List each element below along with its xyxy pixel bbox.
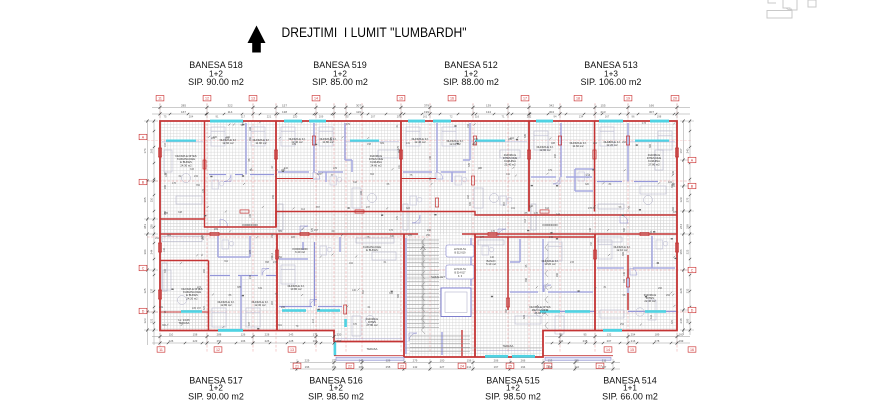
svg-text:374: 374	[203, 305, 206, 310]
svg-text:358: 358	[265, 261, 270, 264]
svg-text:E BUKES: E BUKES	[366, 248, 378, 252]
svg-text:167: 167	[181, 110, 186, 114]
svg-text:229: 229	[333, 167, 338, 170]
svg-text:176: 176	[491, 230, 496, 233]
svg-text:211: 211	[155, 237, 159, 240]
svg-text:13: 13	[290, 348, 294, 352]
svg-text:183: 183	[360, 190, 363, 195]
svg-text:13.80 m2: 13.80 m2	[290, 287, 302, 291]
svg-text:19: 19	[626, 97, 630, 101]
svg-text:394: 394	[143, 249, 147, 254]
svg-text:110: 110	[150, 197, 154, 202]
svg-text:293: 293	[622, 141, 627, 144]
svg-text:172: 172	[332, 358, 337, 362]
svg-text:320: 320	[585, 183, 590, 186]
svg-text:357: 357	[316, 206, 321, 209]
svg-text:TERASA: TERASA	[179, 321, 190, 325]
svg-text:240: 240	[427, 229, 432, 232]
svg-text:332: 332	[686, 288, 690, 293]
svg-text:24.30 m2: 24.30 m2	[180, 163, 192, 167]
svg-text:15: 15	[399, 97, 403, 101]
svg-text:269: 269	[686, 224, 690, 229]
svg-text:11: 11	[158, 97, 162, 101]
svg-text:189: 189	[655, 332, 660, 336]
svg-text:348: 348	[178, 211, 183, 214]
svg-text:171: 171	[396, 215, 399, 220]
svg-text:164: 164	[467, 194, 470, 199]
svg-text:116: 116	[475, 115, 480, 119]
svg-text:224: 224	[559, 339, 564, 343]
svg-text:142: 142	[413, 365, 418, 369]
svg-text:HYRJA 51: HYRJA 51	[454, 247, 467, 251]
svg-text:K. II: K. II	[458, 275, 463, 278]
svg-text:155: 155	[600, 103, 605, 107]
svg-text:294: 294	[203, 268, 206, 273]
svg-text:278: 278	[655, 339, 660, 343]
svg-text:14: 14	[314, 97, 318, 101]
svg-text:198: 198	[657, 115, 662, 119]
svg-text:94: 94	[554, 115, 557, 119]
svg-text:B 512-519: B 512-519	[454, 252, 466, 255]
svg-text:125: 125	[143, 288, 147, 293]
svg-text:SIP. 90.00 m2: SIP. 90.00 m2	[188, 392, 244, 402]
svg-text:TERASA: TERASA	[367, 347, 378, 351]
svg-text:390: 390	[397, 293, 400, 298]
svg-text:316: 316	[353, 181, 358, 184]
svg-text:370: 370	[353, 323, 358, 326]
svg-text:72: 72	[450, 115, 453, 119]
svg-text:24: 24	[460, 364, 464, 368]
svg-text:SHKALLET: SHKALLET	[431, 275, 445, 279]
svg-text:12.10 m2: 12.10 m2	[449, 142, 461, 146]
svg-text:12.80 m2: 12.80 m2	[220, 303, 232, 307]
svg-text:SIP. 106.00 m2: SIP. 106.00 m2	[581, 77, 642, 87]
svg-text:153: 153	[467, 123, 470, 128]
svg-text:71: 71	[502, 115, 505, 119]
svg-text:139: 139	[486, 103, 491, 107]
svg-text:12.40 m2: 12.40 m2	[291, 140, 303, 144]
svg-text:284: 284	[472, 143, 477, 146]
svg-text:110: 110	[575, 365, 580, 369]
svg-text:352: 352	[249, 136, 252, 141]
svg-text:186: 186	[291, 236, 296, 239]
svg-text:175: 175	[313, 332, 318, 336]
svg-text:255: 255	[272, 194, 275, 199]
svg-text:C: C	[142, 267, 145, 271]
svg-text:13.20 m2: 13.20 m2	[544, 262, 556, 266]
svg-text:22.40 m2: 22.40 m2	[644, 299, 656, 303]
svg-text:323: 323	[406, 207, 411, 210]
svg-text:25: 25	[508, 364, 512, 368]
svg-text:319: 319	[258, 287, 263, 290]
svg-text:123: 123	[143, 318, 147, 323]
svg-text:363: 363	[672, 206, 675, 211]
svg-text:143: 143	[359, 358, 364, 362]
svg-text:138: 138	[282, 110, 287, 114]
svg-text:131: 131	[406, 142, 411, 145]
svg-text:100: 100	[440, 358, 445, 362]
svg-text:209: 209	[319, 115, 324, 119]
svg-text:269: 269	[164, 184, 167, 189]
svg-text:344: 344	[362, 289, 365, 294]
svg-text:13: 13	[251, 97, 255, 101]
svg-text:237: 237	[366, 206, 371, 209]
svg-text:204: 204	[554, 153, 557, 158]
svg-text:154: 154	[510, 137, 515, 140]
svg-text:75: 75	[346, 115, 349, 119]
svg-text:6.40 m2: 6.40 m2	[295, 250, 305, 254]
svg-text:SIP. 85.00 m2: SIP. 85.00 m2	[312, 77, 368, 87]
svg-text:95: 95	[583, 332, 587, 336]
svg-text:379: 379	[346, 123, 351, 126]
svg-text:118: 118	[524, 218, 527, 222]
svg-text:20: 20	[673, 97, 677, 101]
svg-text:213: 213	[586, 174, 591, 177]
svg-text:358: 358	[525, 277, 528, 282]
svg-text:206: 206	[494, 358, 499, 362]
svg-text:17: 17	[523, 97, 527, 101]
svg-text:15: 15	[630, 348, 634, 352]
svg-text:161: 161	[423, 115, 428, 119]
svg-text:194: 194	[521, 365, 526, 369]
svg-text:11.80 m2: 11.80 m2	[322, 140, 334, 144]
svg-text:156: 156	[332, 365, 337, 369]
svg-text:176: 176	[172, 182, 177, 185]
svg-text:340: 340	[686, 148, 690, 153]
svg-text:314: 314	[545, 207, 550, 210]
svg-text:235: 235	[548, 365, 553, 369]
svg-text:281: 281	[211, 137, 216, 140]
svg-text:27.80 m2: 27.80 m2	[648, 162, 660, 166]
svg-text:91: 91	[216, 115, 219, 119]
svg-text:337: 337	[248, 321, 251, 326]
svg-text:381: 381	[167, 234, 172, 237]
svg-text:265: 265	[150, 148, 154, 153]
svg-text:246: 246	[249, 274, 252, 279]
svg-text:287: 287	[271, 300, 274, 305]
svg-text:304: 304	[549, 110, 554, 114]
svg-text:SIP. 88.00 m2: SIP. 88.00 m2	[443, 77, 499, 87]
svg-text:197: 197	[249, 249, 252, 254]
svg-text:242: 242	[549, 236, 554, 239]
svg-text:144: 144	[164, 142, 167, 147]
svg-text:209: 209	[397, 115, 402, 119]
svg-text:285: 285	[181, 103, 186, 107]
svg-text:262: 262	[337, 339, 342, 343]
svg-text:219: 219	[159, 306, 164, 309]
svg-text:98: 98	[575, 358, 579, 362]
svg-text:134: 134	[486, 110, 491, 114]
svg-text:129: 129	[679, 197, 683, 202]
svg-text:24.60 m2: 24.60 m2	[370, 163, 382, 167]
svg-text:214: 214	[467, 365, 472, 369]
svg-text:385: 385	[237, 286, 242, 289]
svg-text:112: 112	[301, 208, 305, 211]
svg-text:156: 156	[467, 358, 472, 362]
svg-text:375: 375	[686, 197, 690, 202]
svg-text:161: 161	[511, 207, 516, 210]
svg-text:12.60 m2: 12.60 m2	[222, 141, 234, 145]
svg-text:211: 211	[602, 358, 607, 362]
svg-text:126: 126	[241, 332, 246, 336]
svg-text:24.20 m2: 24.20 m2	[186, 296, 198, 300]
svg-text:354: 354	[398, 148, 401, 153]
svg-text:11.90 m2: 11.90 m2	[255, 141, 267, 145]
svg-text:137: 137	[150, 288, 154, 293]
svg-text:D: D	[691, 309, 694, 313]
svg-text:340: 340	[390, 235, 395, 238]
svg-text:100: 100	[589, 227, 592, 232]
svg-text:266: 266	[521, 358, 526, 362]
svg-text:21: 21	[295, 364, 299, 368]
svg-text:301: 301	[278, 324, 283, 327]
svg-text:174: 174	[143, 148, 147, 153]
svg-text:227: 227	[440, 365, 445, 369]
svg-text:12: 12	[205, 97, 209, 101]
svg-text:262: 262	[666, 294, 671, 297]
svg-text:23: 23	[400, 364, 404, 368]
svg-text:104: 104	[313, 339, 318, 343]
svg-text:5.10 m2: 5.10 m2	[486, 262, 496, 266]
svg-text:344: 344	[150, 249, 154, 254]
svg-text:12.10 m2: 12.10 m2	[616, 248, 628, 252]
svg-text:27.30 m2: 27.30 m2	[366, 323, 378, 327]
svg-text:187: 187	[602, 365, 607, 369]
svg-text:252: 252	[620, 323, 625, 326]
svg-text:196: 196	[305, 365, 310, 369]
svg-text:150: 150	[271, 255, 274, 260]
svg-text:26.90 m2: 26.90 m2	[534, 311, 546, 315]
svg-text:296: 296	[658, 287, 663, 290]
svg-text:114: 114	[228, 110, 233, 114]
svg-text:234: 234	[194, 175, 199, 178]
svg-text:283: 283	[359, 365, 364, 369]
svg-text:TERASA: TERASA	[503, 344, 514, 348]
svg-text:134: 134	[579, 115, 584, 119]
svg-text:339: 339	[524, 133, 527, 138]
svg-text:96: 96	[632, 115, 635, 119]
svg-text:322: 322	[227, 103, 232, 107]
svg-text:12.90 m2: 12.90 m2	[539, 148, 551, 152]
svg-text:117: 117	[241, 115, 246, 119]
svg-text:207: 207	[371, 115, 376, 119]
svg-text:366: 366	[671, 183, 674, 188]
svg-text:238: 238	[583, 339, 588, 343]
svg-text:144: 144	[556, 213, 561, 216]
svg-text:11.60 m2: 11.60 m2	[572, 144, 584, 148]
svg-text:167: 167	[494, 365, 499, 369]
svg-text:252: 252	[278, 256, 283, 259]
svg-text:273: 273	[201, 234, 204, 239]
svg-text:159: 159	[429, 155, 432, 160]
svg-text:248: 248	[679, 318, 683, 323]
svg-text:187: 187	[317, 173, 322, 176]
svg-text:96: 96	[559, 332, 563, 336]
svg-text:KORRIDORI: KORRIDORI	[542, 223, 557, 227]
svg-text:226: 226	[169, 339, 174, 343]
svg-text:22: 22	[348, 364, 352, 368]
svg-text:158: 158	[193, 332, 198, 336]
svg-text:209: 209	[214, 228, 219, 231]
svg-text:16: 16	[690, 348, 694, 352]
svg-text:295: 295	[281, 306, 286, 309]
svg-text:221: 221	[267, 115, 272, 119]
svg-text:18: 18	[576, 97, 580, 101]
svg-text:369: 369	[278, 230, 283, 233]
svg-text:323: 323	[686, 249, 690, 254]
svg-text:140: 140	[352, 289, 357, 292]
svg-text:75: 75	[164, 115, 167, 119]
svg-text:160: 160	[679, 332, 684, 336]
svg-text:226: 226	[265, 339, 270, 343]
svg-text:167: 167	[679, 148, 683, 153]
svg-text:254: 254	[631, 332, 636, 336]
svg-text:131: 131	[398, 164, 401, 169]
svg-text:SIP. 98.50 m2: SIP. 98.50 m2	[308, 392, 364, 402]
svg-text:302: 302	[623, 227, 626, 232]
svg-text:243: 243	[289, 332, 294, 336]
svg-text:154: 154	[590, 241, 593, 246]
svg-text:SIP. 98.50 m2: SIP. 98.50 m2	[485, 392, 541, 402]
svg-text:279: 279	[413, 358, 418, 362]
svg-text:153: 153	[548, 358, 553, 362]
svg-text:106: 106	[241, 339, 246, 343]
svg-text:228: 228	[265, 332, 270, 336]
svg-text:14: 14	[606, 348, 610, 352]
svg-text:216: 216	[631, 339, 636, 343]
svg-text:DREJTIMI I LUMIT "LUMBARDH": DREJTIMI I LUMIT "LUMBARDH"	[282, 25, 467, 40]
svg-text:C: C	[691, 269, 694, 273]
svg-text:140: 140	[490, 256, 495, 259]
svg-text:323: 323	[523, 314, 526, 319]
svg-text:215: 215	[273, 261, 278, 264]
svg-text:207: 207	[607, 339, 612, 343]
svg-text:167: 167	[605, 115, 610, 119]
svg-text:223: 223	[193, 339, 198, 343]
svg-text:266: 266	[556, 272, 559, 277]
svg-text:379: 379	[548, 169, 553, 172]
svg-text:SIP. 66.00 m2: SIP. 66.00 m2	[602, 392, 658, 402]
svg-text:157: 157	[282, 103, 287, 107]
svg-text:349: 349	[469, 201, 472, 206]
svg-text:166: 166	[649, 103, 654, 107]
svg-text:264: 264	[679, 224, 683, 229]
svg-text:126: 126	[386, 358, 391, 362]
svg-text:305: 305	[143, 197, 147, 202]
svg-text:220: 220	[293, 115, 298, 119]
svg-text:157: 157	[197, 307, 202, 310]
svg-text:199: 199	[424, 110, 429, 114]
svg-text:213: 213	[600, 110, 605, 114]
svg-text:288: 288	[217, 332, 222, 336]
svg-text:292: 292	[593, 142, 598, 145]
svg-text:217: 217	[312, 318, 315, 323]
svg-text:379: 379	[424, 103, 429, 107]
svg-text:146: 146	[672, 170, 675, 175]
svg-text:311: 311	[224, 260, 228, 263]
svg-text:177: 177	[480, 236, 485, 239]
svg-text:110: 110	[169, 332, 174, 336]
svg-text:364: 364	[370, 173, 375, 176]
svg-text:376: 376	[468, 162, 471, 167]
svg-text:386: 386	[679, 249, 683, 254]
svg-text:D: D	[142, 310, 145, 314]
svg-text:372: 372	[671, 319, 674, 324]
svg-text:132: 132	[607, 332, 612, 336]
svg-text:357: 357	[503, 201, 506, 206]
svg-text:297: 297	[314, 229, 319, 232]
svg-text:346: 346	[623, 278, 626, 283]
svg-text:121: 121	[150, 318, 154, 323]
svg-text:342: 342	[549, 103, 554, 107]
svg-text:307: 307	[649, 110, 654, 114]
svg-text:119: 119	[356, 110, 361, 114]
svg-text:229: 229	[305, 358, 310, 362]
svg-text:379: 379	[311, 227, 314, 232]
svg-text:11: 11	[159, 348, 163, 352]
svg-text:288: 288	[164, 210, 167, 215]
svg-text:366: 366	[162, 324, 167, 327]
svg-text:12.20 m2: 12.20 m2	[606, 143, 618, 147]
svg-text:333: 333	[190, 168, 195, 171]
svg-text:313: 313	[650, 314, 653, 319]
svg-text:254: 254	[217, 339, 222, 343]
svg-text:188: 188	[551, 142, 556, 145]
svg-text:HYRJA 51: HYRJA 51	[454, 267, 467, 271]
svg-text:150: 150	[271, 233, 274, 238]
svg-text:12.40 m2: 12.40 m2	[414, 140, 426, 144]
svg-text:309: 309	[380, 142, 385, 145]
svg-text:129: 129	[202, 188, 205, 193]
svg-text:165: 165	[249, 213, 252, 218]
svg-text:202: 202	[527, 115, 532, 119]
svg-text:383: 383	[143, 224, 147, 229]
svg-text:KORRIDORI: KORRIDORI	[242, 223, 257, 227]
svg-text:380: 380	[649, 143, 652, 148]
svg-text:162: 162	[349, 262, 354, 265]
svg-text:385: 385	[686, 318, 690, 323]
svg-text:345: 345	[389, 292, 394, 295]
svg-text:12.30 m2: 12.30 m2	[254, 303, 266, 307]
svg-text:220: 220	[337, 332, 342, 336]
svg-text:16: 16	[450, 97, 454, 101]
svg-text:215: 215	[570, 261, 575, 264]
svg-text:172: 172	[389, 229, 394, 232]
svg-text:352: 352	[196, 184, 201, 187]
svg-text:105: 105	[192, 307, 197, 310]
svg-text:173: 173	[642, 122, 647, 125]
svg-text:199: 199	[679, 339, 684, 343]
svg-text:183: 183	[249, 126, 252, 131]
svg-text:307: 307	[356, 103, 361, 107]
svg-text:184: 184	[505, 308, 508, 313]
svg-text:12: 12	[216, 348, 220, 352]
svg-text:228: 228	[679, 288, 683, 293]
svg-text:136: 136	[623, 271, 626, 276]
svg-text:128: 128	[289, 339, 294, 343]
svg-text:132: 132	[163, 247, 166, 252]
svg-text:225: 225	[408, 234, 413, 237]
svg-text:204: 204	[189, 115, 194, 119]
svg-text:176: 176	[534, 212, 539, 215]
svg-text:278: 278	[588, 207, 593, 210]
svg-text:SIP. 90.00 m2: SIP. 90.00 m2	[188, 77, 244, 87]
svg-text:342: 342	[164, 268, 167, 273]
svg-text:25.40 m2: 25.40 m2	[504, 162, 516, 166]
svg-text:250: 250	[426, 234, 431, 237]
svg-text:258: 258	[386, 365, 391, 369]
svg-text:158: 158	[367, 143, 372, 146]
